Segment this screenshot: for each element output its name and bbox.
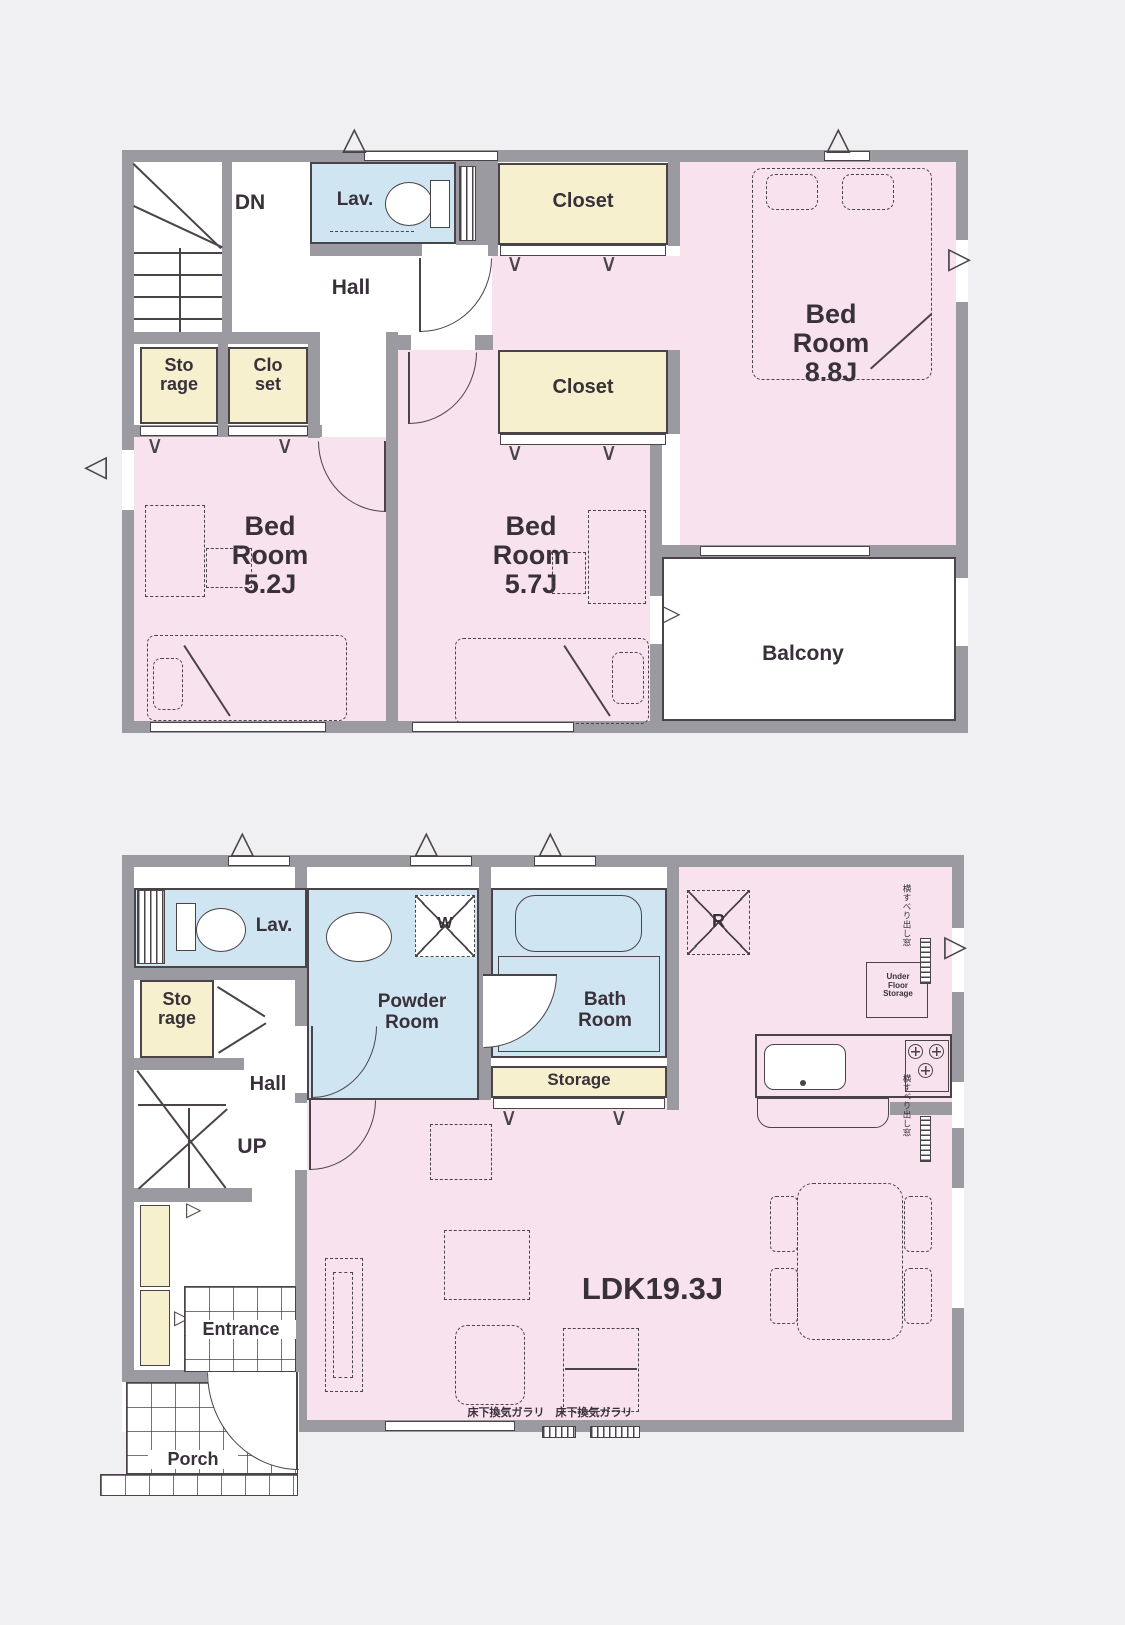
shoe-cabinet [140, 1290, 170, 1366]
door-leaf [384, 441, 386, 512]
closet-top-door [500, 245, 666, 256]
stair-newel-line [188, 1108, 190, 1188]
wall [134, 968, 314, 980]
lavatory-2f-label: Lav. [324, 190, 386, 211]
ldk-label: LDK19.3J [545, 1272, 760, 1305]
window-opening [122, 450, 134, 510]
pillow [842, 174, 894, 210]
wall [667, 867, 679, 1110]
door-leaf [296, 1372, 298, 1470]
side-table [430, 1124, 492, 1180]
faucet-icon [800, 1080, 806, 1086]
sliding-window [700, 546, 870, 556]
wall [218, 344, 228, 425]
porch-label: Porch [148, 1450, 238, 1469]
stairs-up-label: UP [222, 1136, 282, 1159]
wall [308, 332, 320, 438]
door-swing-icon: ∨ [506, 252, 524, 276]
wall [134, 1058, 244, 1070]
washing-machine-label: W [415, 915, 475, 932]
low-table [455, 1325, 525, 1405]
bath-room-label: Bath Room [545, 990, 665, 1031]
toilet-icon [196, 908, 246, 952]
wall [122, 150, 134, 733]
slit-window-icon [920, 938, 931, 984]
towel-rail-icon [330, 231, 414, 232]
closet-row-door [228, 426, 308, 436]
floor-vent-icon [542, 1426, 576, 1438]
wall [397, 335, 411, 350]
door-swing-icon: ∨ [600, 252, 618, 276]
sink-icon [326, 912, 392, 962]
wall [668, 350, 680, 434]
toilet-tank-icon [430, 180, 450, 228]
window-note-upper: 横すべり出し窓 [901, 884, 913, 994]
wall [122, 855, 134, 1382]
wall [132, 332, 318, 344]
door-swing-icon: ∨ [500, 1106, 518, 1130]
chair [206, 548, 252, 588]
wall [310, 244, 422, 256]
tv-board-inner [333, 1272, 353, 1378]
sliding-window [385, 1421, 515, 1431]
pillow [153, 658, 183, 710]
chair [904, 1268, 932, 1324]
chair [904, 1196, 932, 1252]
window-opening [650, 596, 662, 644]
wall [222, 162, 232, 334]
cabinet-inner-line [565, 1368, 637, 1370]
balcony [662, 557, 956, 721]
closet-lower-door [500, 434, 666, 445]
cabinet [563, 1328, 639, 1412]
window [364, 151, 498, 161]
storage-1f-label: Sto rage [140, 990, 214, 1029]
refrigerator-label: R [687, 912, 750, 931]
vent-triangle-icon: △ [826, 122, 851, 154]
burner-icon [929, 1044, 944, 1059]
wall [386, 332, 398, 733]
under-floor-storage: Under Floor Storage [866, 962, 928, 1018]
wall [668, 162, 680, 246]
door-leaf [408, 352, 410, 424]
door-leaf [483, 974, 557, 976]
desk [588, 510, 646, 604]
desk [145, 505, 205, 597]
door-swing-icon: ▷ [186, 1200, 201, 1220]
sliding-window [412, 722, 574, 732]
stairs-down-label: DN [218, 192, 282, 215]
stair-step [134, 296, 222, 298]
door-swing-icon: ∨ [276, 434, 294, 458]
storage-2f-label: Sto rage [140, 356, 218, 395]
door-swing-icon: ∨ [146, 434, 164, 458]
vent-triangle-icon: △ [342, 122, 367, 154]
closet-lower-label: Closet [498, 377, 668, 399]
burner-icon [918, 1063, 933, 1078]
storage-strip-label: Storage [491, 1071, 667, 1089]
door-leaf [311, 1026, 313, 1098]
chair [770, 1196, 798, 1252]
window-note-lower: 横すべり出し窓 [901, 1074, 913, 1184]
bathtub-icon [515, 895, 642, 952]
pillow [766, 174, 818, 210]
vent-triangle-icon: △ [414, 826, 439, 858]
louver-window-icon [137, 890, 165, 964]
window-arrow-icon: ▷ [948, 244, 971, 274]
floor-vent-icon [590, 1426, 640, 1438]
wall [475, 335, 493, 350]
closet-top-label: Closet [498, 191, 668, 213]
vent-triangle-icon: △ [538, 826, 563, 858]
wall [488, 245, 498, 256]
dining-table [797, 1183, 903, 1340]
sliding-window [150, 722, 326, 732]
pillow [612, 652, 644, 704]
slit-window-icon [920, 1116, 931, 1162]
shoe-cabinet [140, 1205, 170, 1287]
balcony-label: Balcony [738, 643, 868, 666]
lavatory-1f-label: Lav. [246, 916, 302, 937]
stair-step [138, 1104, 226, 1106]
storage-door [493, 1098, 665, 1109]
window-opening [956, 578, 968, 646]
door-leaf [309, 1100, 311, 1170]
window-arrow-icon: ▷ [944, 932, 967, 962]
door-swing-icon: ∨ [600, 441, 618, 465]
sofa [444, 1230, 530, 1300]
window-opening [952, 1082, 964, 1128]
stair-newel-line [179, 248, 181, 332]
stair-step [134, 252, 222, 254]
wall [650, 437, 662, 733]
door-swing-icon: ▷ [662, 602, 680, 626]
hall-2f-label: Hall [316, 277, 386, 300]
closet-small-label: Clo set [228, 356, 308, 395]
toilet-icon [385, 182, 433, 226]
wall [890, 1102, 952, 1115]
floor-vent-note: 床下換気ガラリ 床下換気ガラリ [430, 1408, 670, 1420]
door-leaf [419, 258, 421, 332]
floorplan-page: Lav. Closet ∨ ∨ Closet ∨ ∨ Sto rage Clo … [0, 0, 1125, 1625]
door-swing-icon: ∨ [506, 441, 524, 465]
stair-step [134, 318, 222, 320]
toilet-tank-icon [176, 903, 196, 951]
louver-window-icon [459, 166, 476, 241]
window-arrow-icon: ◁ [84, 452, 107, 482]
burner-icon [908, 1044, 923, 1059]
vent-triangle-icon: △ [230, 826, 255, 858]
stair-step [134, 274, 222, 276]
hall-1f-label: Hall [235, 1074, 301, 1096]
entrance-label: Entrance [186, 1320, 296, 1339]
chair [770, 1268, 798, 1324]
porch-step [100, 1474, 298, 1496]
kitchen-counter-front [757, 1098, 889, 1128]
window-opening [952, 1188, 964, 1308]
chair [552, 552, 586, 594]
door-swing-icon: ∨ [610, 1106, 628, 1130]
